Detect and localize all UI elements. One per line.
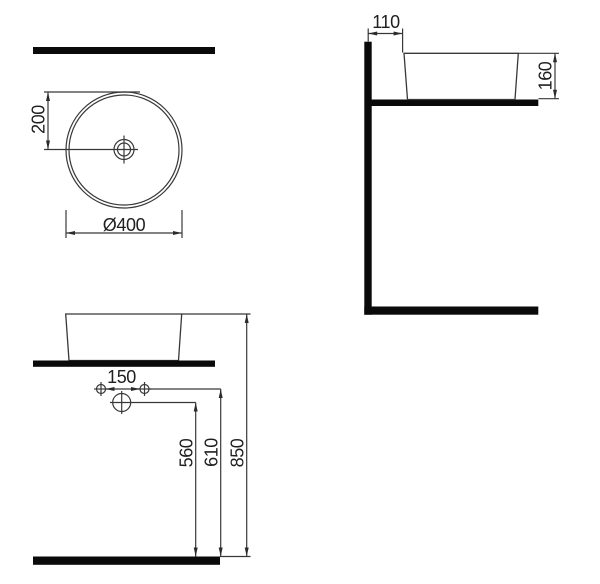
dim-label-110: 110 [372,12,400,32]
dim-label-610: 610 [202,438,222,467]
countertop-bar [367,100,538,107]
front-view: 150 560 610 850 [33,314,251,565]
basin-side-profile [404,53,518,99]
dim-arrow-right [131,387,140,391]
dim-arrow-right [394,32,403,36]
dim-arrow-left [368,32,377,36]
top-view: 200 Ø400 [29,47,216,238]
floor-bar [33,557,220,565]
dim-label-160: 160 [536,61,556,90]
floor-bar [364,307,538,315]
dim-arrow-down [219,548,223,557]
dim-label-150: 150 [107,367,136,387]
dim-arrow-down [194,548,198,557]
dim-arrow-up [245,314,249,323]
dim-arrow-down [245,548,249,557]
dim-label-560: 560 [177,438,197,467]
dim-arrow-up [219,389,223,398]
basin-front-profile [66,314,182,361]
wall-bar [364,42,371,315]
drawing-canvas: 200 Ø400 110 [0,0,600,584]
dim-arrow-left [106,387,115,391]
basin-technical-drawing: 200 Ø400 110 [0,0,600,584]
wall-bar [33,47,215,54]
dim-label-diameter-400: Ø400 [103,215,146,235]
dim-arrow-up [46,92,50,101]
dim-arrow-up [194,403,198,412]
dim-arrow-left [66,231,75,235]
dim-label-200: 200 [29,105,49,134]
dim-arrow-right [173,231,182,235]
dim-arrow-up [553,53,557,62]
countertop-bar [33,361,215,367]
dim-label-850: 850 [228,438,248,467]
side-view: 110 160 [364,12,559,315]
dim-arrow-down [46,141,50,150]
